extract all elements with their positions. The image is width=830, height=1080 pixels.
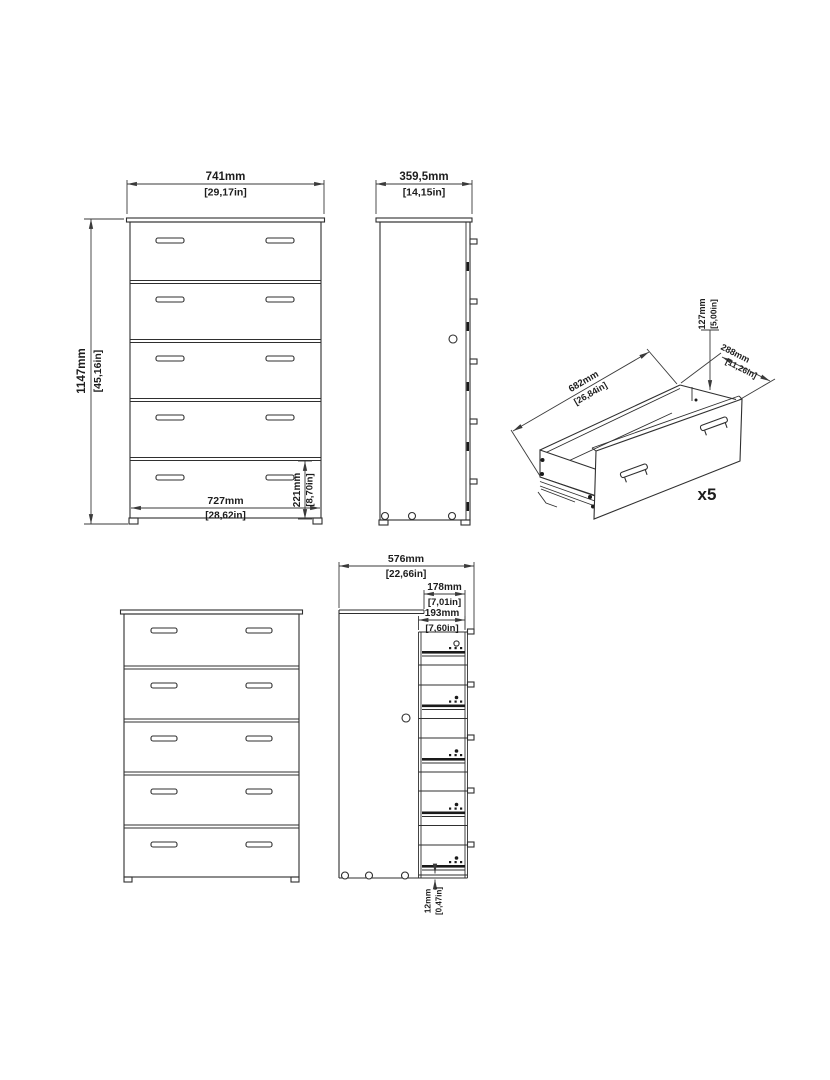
drawer-quantity-label: x5 <box>698 485 717 504</box>
foot-right <box>313 518 322 524</box>
section-top-inset-in-label: [7,01in] <box>428 597 461 608</box>
section-bottom-gap-label: 12mm <box>423 888 433 913</box>
edge-marks <box>467 262 469 511</box>
front-height-label: 1147mm <box>76 348 88 393</box>
front-drawer-height-in-label: [8,70in] <box>305 473 316 506</box>
side-section-view: 576mm [22,66in] 178mm [7,01in] 193mm [7,… <box>339 553 474 915</box>
section-depth-in-label: [22,66in] <box>386 569 427 580</box>
cam-hole <box>402 714 410 722</box>
section-depth-label: 576mm <box>388 553 424 565</box>
side-view-top: 359,5mm [14,15in] <box>376 171 477 525</box>
section-outline <box>339 610 468 878</box>
drawer-handle-tabs <box>470 239 477 484</box>
drawer-handles <box>156 238 294 480</box>
dimension-front-height: 1147mm [45,16in] <box>76 219 128 524</box>
section-front-depth-label: 193mm <box>425 608 460 619</box>
cabinet-side-outline <box>376 218 472 525</box>
front-height-in-label: [45,16in] <box>92 350 104 393</box>
section-bottom-gap-in-label: [0,47in] <box>435 887 444 915</box>
cam-hole <box>449 335 457 343</box>
dimension-side-depth: 359,5mm [14,15in] <box>376 171 472 214</box>
drawer-handles <box>151 628 272 847</box>
drawer-height-label: 127mm <box>697 298 707 329</box>
drawer-dividers <box>130 281 321 461</box>
drawer-dividers <box>124 666 299 828</box>
drawer-handle-tabs <box>468 629 475 847</box>
dimension-drawer-height: 127mm [5,00in] <box>697 298 719 390</box>
front-drawer-height-label: 221mm <box>292 473 303 508</box>
dimension-front-width: 741mm [29,17in] <box>127 171 324 214</box>
dimension-bottom-gap: 12mm [0,47in] <box>423 866 444 915</box>
section-top-inset-label: 178mm <box>427 582 462 593</box>
foot-right <box>461 520 470 525</box>
dimension-bottom-drawer-height: 221mm [8,70in] <box>292 461 316 519</box>
front-width-label: 741mm <box>206 171 246 183</box>
foot-left <box>379 520 388 525</box>
dimension-front-depth: 193mm [7,60in] <box>419 608 466 634</box>
technical-drawing-page: 741mm [29,17in] 1147mm [45,16in] 727mm [… <box>0 0 830 1080</box>
side-depth-in-label: [14,15in] <box>403 187 446 199</box>
foot-left <box>124 877 132 882</box>
cabinet-outline <box>121 610 303 882</box>
dimension-drawer-depth: 288mm [11,26in] <box>681 342 775 400</box>
dimension-top-inset: 178mm [7,01in] <box>424 582 465 629</box>
foot-right <box>291 877 299 882</box>
furniture-dimension-drawing: 741mm [29,17in] 1147mm [45,16in] 727mm [… <box>0 0 830 1080</box>
front-inner-width-in-label: [28,62in] <box>205 511 246 522</box>
front-view-bottom <box>121 610 303 882</box>
front-inner-width-label: 727mm <box>207 495 243 507</box>
drawer-3d-view: 682mm [26,84in] 127mm [5,00in] 288mm [11… <box>511 298 775 519</box>
front-view-top: 741mm [29,17in] 1147mm [45,16in] 727mm [… <box>76 171 325 524</box>
drawer-slide-rails <box>422 641 465 870</box>
drawer-height-in-label: [5,00in] <box>709 299 719 329</box>
front-width-in-label: [29,17in] <box>204 187 247 199</box>
side-depth-label: 359,5mm <box>399 171 448 183</box>
foot-left <box>129 518 138 524</box>
section-front-depth-in-label: [7,60in] <box>425 623 458 634</box>
bottom-glides <box>382 513 456 520</box>
